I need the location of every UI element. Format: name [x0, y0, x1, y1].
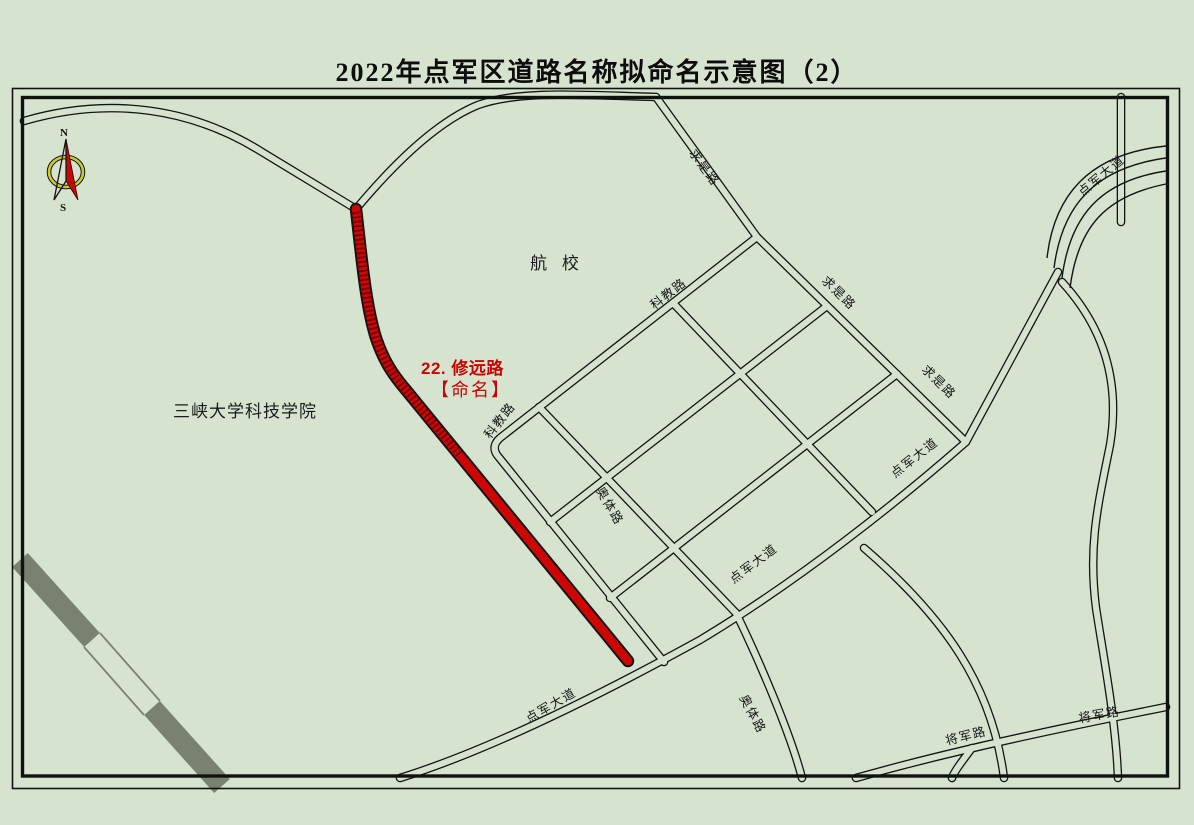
road-fill	[356, 95, 656, 209]
map-canvas: N S 求是路 科教路 求是路 求是路 点军大道 科教路 奥体路 点军大道 点军…	[0, 0, 1194, 825]
compass-south-label: S	[60, 202, 66, 214]
overpass-outline-edge	[84, 647, 144, 715]
overpass-band	[20, 560, 222, 786]
overpass-solid-segment	[20, 560, 92, 640]
road-label-qiushi-top: 求是路	[686, 146, 723, 189]
map-border	[13, 89, 1180, 789]
compass-rose: N S	[49, 127, 83, 214]
road-network-casing	[24, 95, 1166, 778]
highlight-annotation-name: 22. 修远路	[421, 358, 504, 378]
map-page: 2022年点军区道路名称拟命名示意图（2）	[0, 0, 1194, 825]
map-border-outer	[13, 89, 1180, 789]
road-northwest-winding-east	[356, 95, 656, 209]
road-dianjun-dadao	[400, 272, 1058, 778]
compass-needle-outline	[54, 139, 66, 200]
road-label-aoti-lower: 奥体路	[736, 692, 769, 736]
place-label-university: 三峡大学科技学院	[173, 402, 317, 421]
compass-north-label: N	[60, 127, 68, 139]
highlighted-road-hatching	[356, 212, 460, 455]
place-label-aviation-school: 航 校	[530, 254, 584, 273]
overpass-outline-edge	[100, 633, 160, 701]
road-network-fill	[24, 95, 1166, 778]
road-fill	[550, 306, 827, 522]
highlight-annotation: 22. 修远路 【命名】	[421, 358, 511, 400]
road-fill	[656, 97, 966, 442]
map-border-inner	[23, 98, 1168, 777]
road-label-dianjun-mid2: 点军大道	[727, 541, 780, 586]
road-qiushi-lu	[656, 97, 966, 442]
highlight-annotation-tag: 【命名】	[431, 380, 511, 400]
compass-needle-red	[66, 139, 78, 200]
road-fill	[400, 272, 1058, 778]
